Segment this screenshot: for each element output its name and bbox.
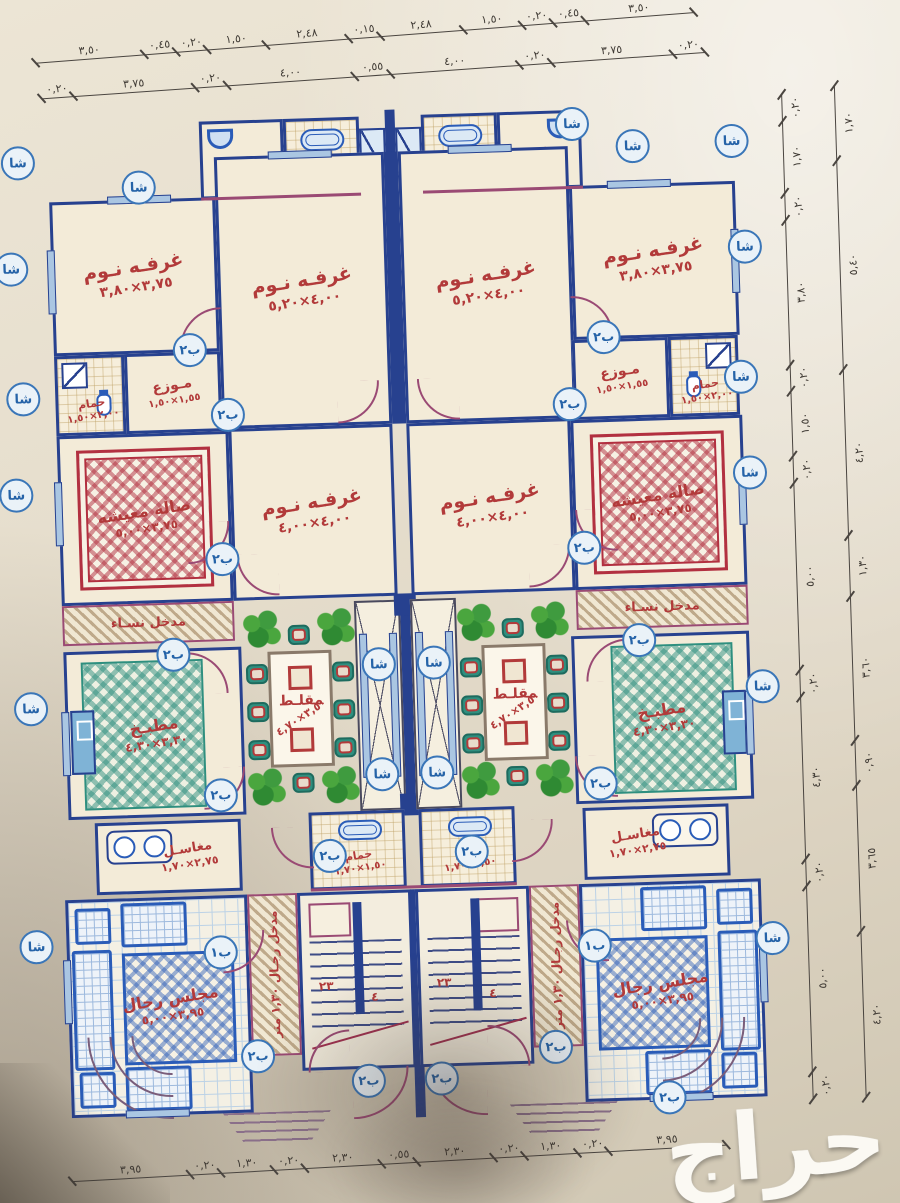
- chair-icon: [462, 733, 485, 754]
- room-distributor-right: مـوزع١,٥٥×١,٥٠: [572, 337, 670, 420]
- chair-icon: [501, 618, 524, 639]
- plant-icon: [526, 598, 571, 643]
- room-living-right: صاله معيشه٣,٧٥×٥,٠٠: [570, 415, 747, 590]
- haraj-watermark: حراج: [661, 1084, 889, 1203]
- stair-landing: [308, 902, 351, 937]
- room-dims: ٢,٠٠×١,٥٠: [67, 407, 121, 427]
- photo-shadow: [330, 1080, 590, 1203]
- chair-icon: [548, 730, 571, 751]
- women-entrance-right: مدخل نسـاء: [576, 585, 749, 630]
- chair-icon: [248, 740, 271, 761]
- chair-icon: [332, 661, 355, 682]
- dining-table: مقلـط٣,٥٠×٤,٧٠: [267, 650, 335, 768]
- chair-icon: [292, 772, 315, 793]
- chair-icon: [334, 737, 357, 758]
- women-entrance-left: مدخل نسـاء: [62, 601, 235, 646]
- axis-marker: شا: [732, 455, 767, 490]
- dining-area-left: مقلـط٣,٥٠×٤,٧٠: [242, 603, 360, 814]
- room-living-left: صاله معيشه٣,٧٥×٥,٠٠: [57, 431, 234, 606]
- door-arc: [271, 826, 314, 869]
- plant-icon: [457, 759, 502, 804]
- axis-marker: شا: [0, 252, 29, 287]
- chair-icon: [333, 699, 356, 720]
- plant-icon: [312, 605, 357, 650]
- chair-icon: [546, 654, 569, 675]
- room-sinks-low-left: مغاسـل٢,٧٥×١,٧٠: [95, 819, 243, 896]
- dining-area-right: مقلـط٣,٥٠×٤,٧٠: [456, 596, 574, 807]
- plant-icon: [452, 601, 497, 646]
- door-arc: [511, 819, 554, 862]
- axis-marker: شا: [727, 229, 762, 264]
- chair-icon: [461, 695, 484, 716]
- room-distributor-left: مـوزع١,٥٥×١,٥٠: [124, 351, 222, 434]
- chair-icon: [246, 664, 269, 685]
- plant-icon: [243, 765, 288, 810]
- chair-icon: [247, 702, 270, 723]
- plant-icon: [531, 756, 576, 801]
- axis-marker: شا: [554, 106, 589, 141]
- chair-icon: [460, 657, 483, 678]
- axis-marker: شا: [0, 478, 34, 513]
- axis-marker: شا: [19, 930, 54, 965]
- room-sinks-low-right: مغاسـل٢,٧٥×١,٧٠: [582, 803, 730, 880]
- chair-icon: [288, 624, 311, 645]
- photo-corner-shade: [0, 1063, 170, 1203]
- room-bath-side-left: حمام٢,٠٠×١,٥٠: [54, 354, 126, 436]
- room-dims: ٢,٠٠×١,٥٠: [680, 387, 734, 407]
- axis-marker: شا: [6, 382, 41, 417]
- stair-landing: [476, 897, 519, 932]
- plant-icon: [238, 607, 283, 652]
- axis-marker: شا: [615, 129, 650, 164]
- entry-label: مدخل نسـاء: [624, 598, 700, 617]
- plant-icon: [317, 763, 362, 808]
- axis-marker: شا: [745, 669, 780, 704]
- axis-marker: شا: [723, 359, 758, 394]
- photo-background: ٣,٥٠٠,٤٥٠,٢٠١,٥٠٢,٤٨٠,١٥٢,٤٨١,٥٠٠,٢٠٠,٤٥…: [0, 0, 900, 1203]
- axis-marker: شا: [755, 921, 790, 956]
- axis-marker: شا: [0, 146, 35, 181]
- axis-marker: شا: [714, 123, 749, 158]
- entry-label: مدخل نسـاء: [111, 614, 187, 633]
- dining-table: مقلـط٣,٥٠×٤,٧٠: [481, 643, 549, 761]
- chair-icon: [547, 692, 570, 713]
- axis-marker: شا: [14, 692, 49, 727]
- chair-icon: [506, 766, 529, 787]
